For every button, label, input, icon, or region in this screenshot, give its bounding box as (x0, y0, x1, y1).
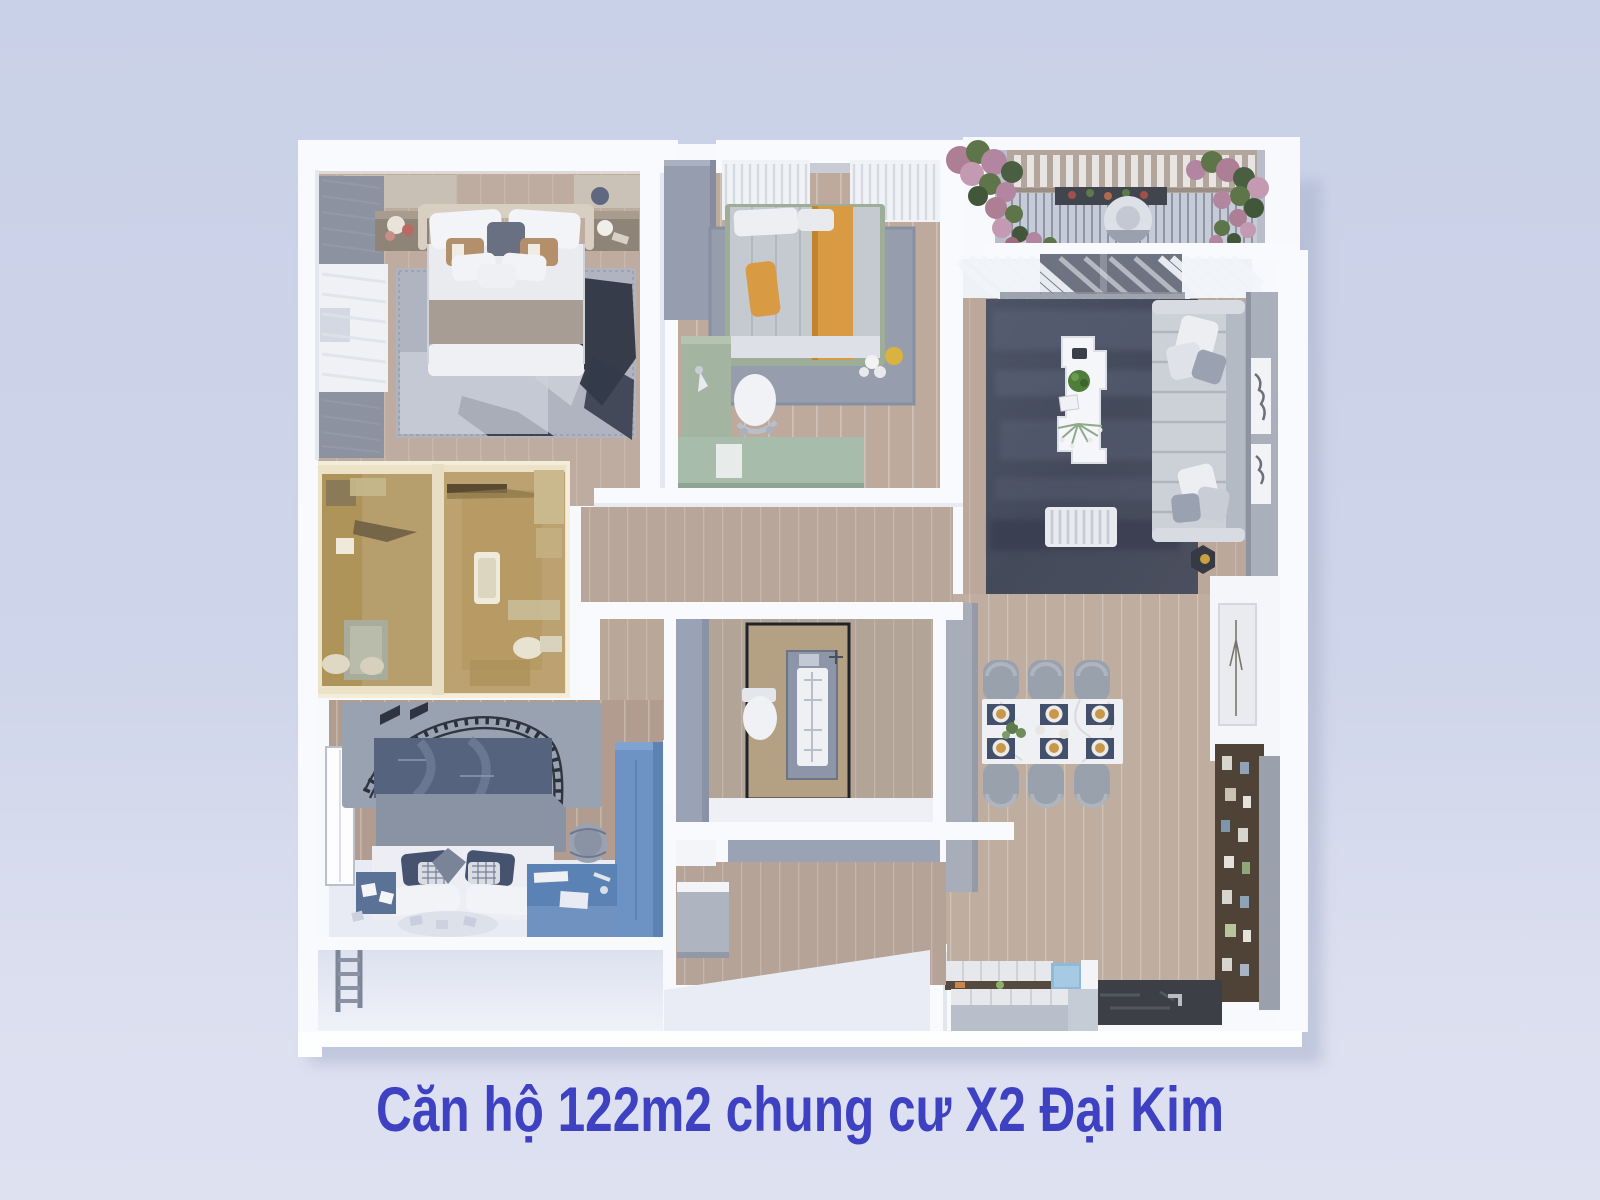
svg-text:Căn hộ 122m2 chung cư X2 Đại K: Căn hộ 122m2 chung cư X2 Đại Kim (376, 1075, 1224, 1145)
